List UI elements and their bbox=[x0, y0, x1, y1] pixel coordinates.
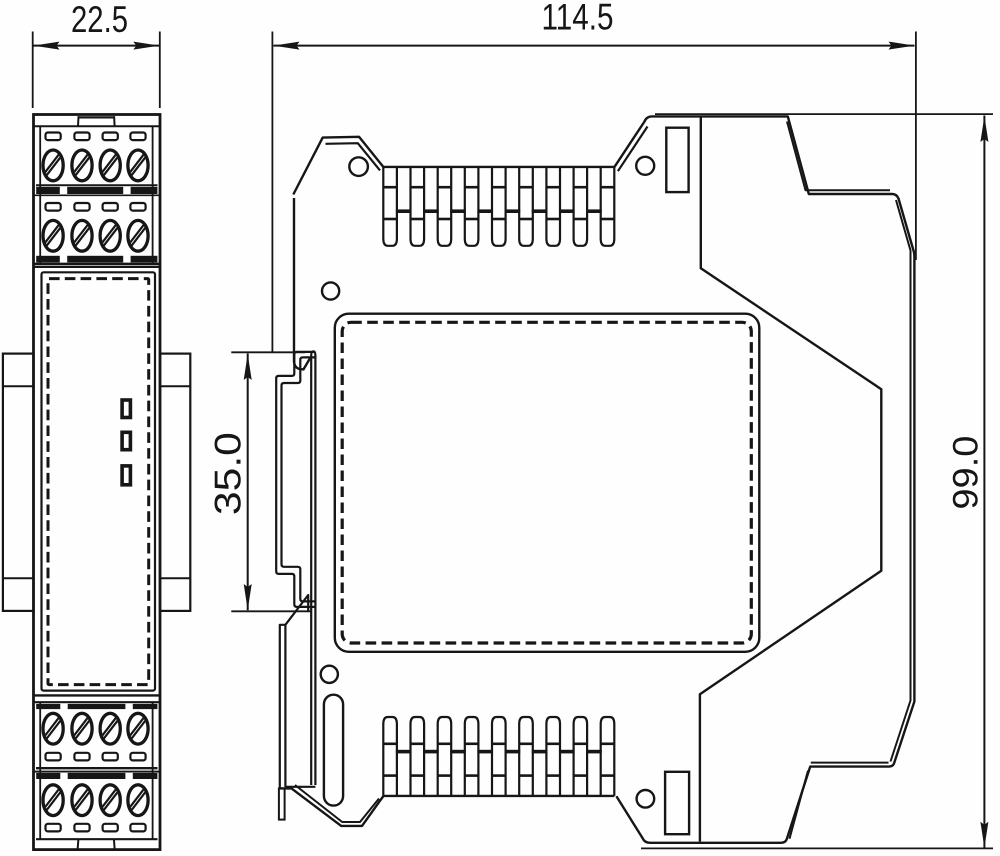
svg-text:99.0: 99.0 bbox=[947, 436, 986, 510]
svg-text:114.5: 114.5 bbox=[542, 0, 614, 38]
svg-text:35.0: 35.0 bbox=[208, 432, 249, 515]
svg-text:22.5: 22.5 bbox=[71, 0, 128, 40]
